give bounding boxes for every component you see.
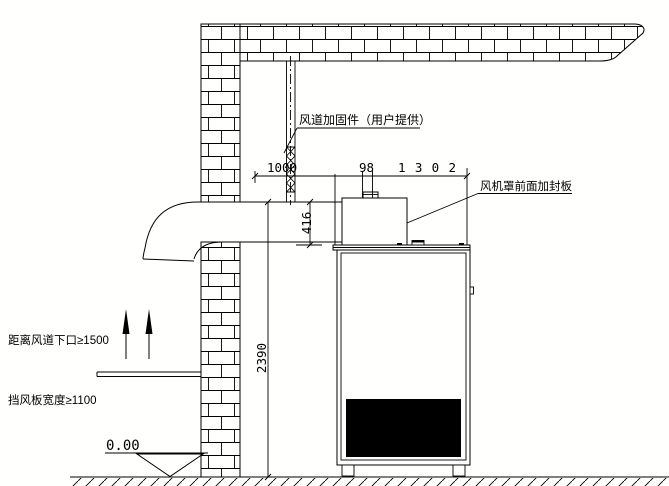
up-arrow-icon [123, 309, 130, 334]
drawing-canvas: 1000 98 1302 416 2390 风道加固件（用户提供） 风机罩前面加… [0, 0, 669, 486]
ground [70, 477, 669, 486]
unit-grille [346, 399, 461, 457]
dim-1000: 1000 [267, 160, 297, 175]
horizontal-duct [240, 202, 342, 242]
label-duct-reinforcement: 风道加固件（用户提供） [299, 112, 431, 127]
outdoor-unit [333, 241, 474, 477]
annotations: 风道加固件（用户提供） 风机罩前面加封板 [284, 112, 572, 223]
dim-2390: 2390 [254, 343, 269, 373]
level-value: 0.00 [106, 438, 140, 454]
riser-duct [287, 56, 296, 205]
up-arrow-icon [146, 309, 153, 334]
dim-416: 416 [299, 212, 314, 235]
fan-hood-cap [363, 192, 378, 198]
technical-drawing: 1000 98 1302 416 2390 风道加固件（用户提供） 风机罩前面加… [0, 0, 669, 486]
airflow-arrows [123, 309, 153, 359]
level-symbol-icon: 0.00 [105, 438, 208, 477]
unit-foot-right [453, 465, 465, 476]
dim-98: 98 [359, 160, 374, 175]
fan-hood [342, 192, 407, 245]
wind-baffle-plate [97, 372, 201, 377]
note-baffle: 挡风板宽度≥1100 [8, 393, 97, 407]
note-distance: 距离风道下口≥1500 [8, 333, 109, 347]
dim-1302: 1302 [398, 160, 456, 175]
unit-foot-left [342, 465, 354, 476]
label-fan-hood-plate: 风机罩前面加封板 [480, 179, 572, 193]
ceiling-slab [240, 24, 644, 61]
